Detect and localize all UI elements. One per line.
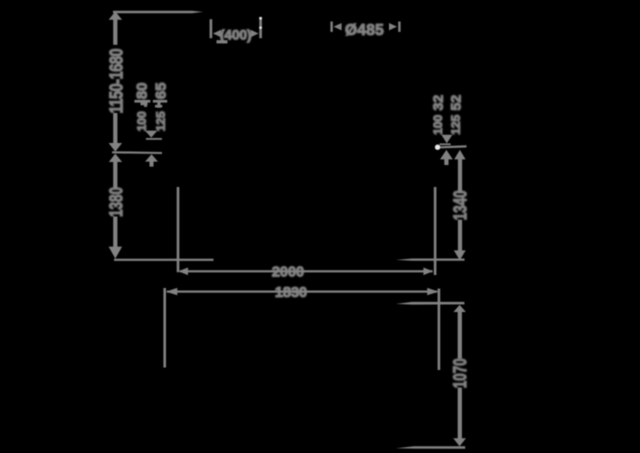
svg-text:125: 125 [449, 114, 463, 134]
svg-text:52: 52 [449, 95, 465, 111]
svg-text:2000: 2000 [272, 265, 304, 281]
svg-text:1150-1680: 1150-1680 [106, 49, 127, 114]
svg-text:1070: 1070 [450, 358, 471, 388]
svg-text:65: 65 [153, 83, 170, 100]
svg-text:80: 80 [134, 83, 151, 100]
svg-text:Ø485: Ø485 [345, 22, 384, 39]
svg-text:1340: 1340 [450, 190, 471, 220]
svg-text:1830: 1830 [275, 285, 307, 301]
svg-text:125: 125 [154, 111, 168, 131]
svg-text:100: 100 [431, 114, 445, 134]
svg-text:32: 32 [431, 95, 447, 111]
svg-text:100: 100 [135, 111, 149, 131]
svg-text:1380: 1380 [106, 187, 127, 217]
